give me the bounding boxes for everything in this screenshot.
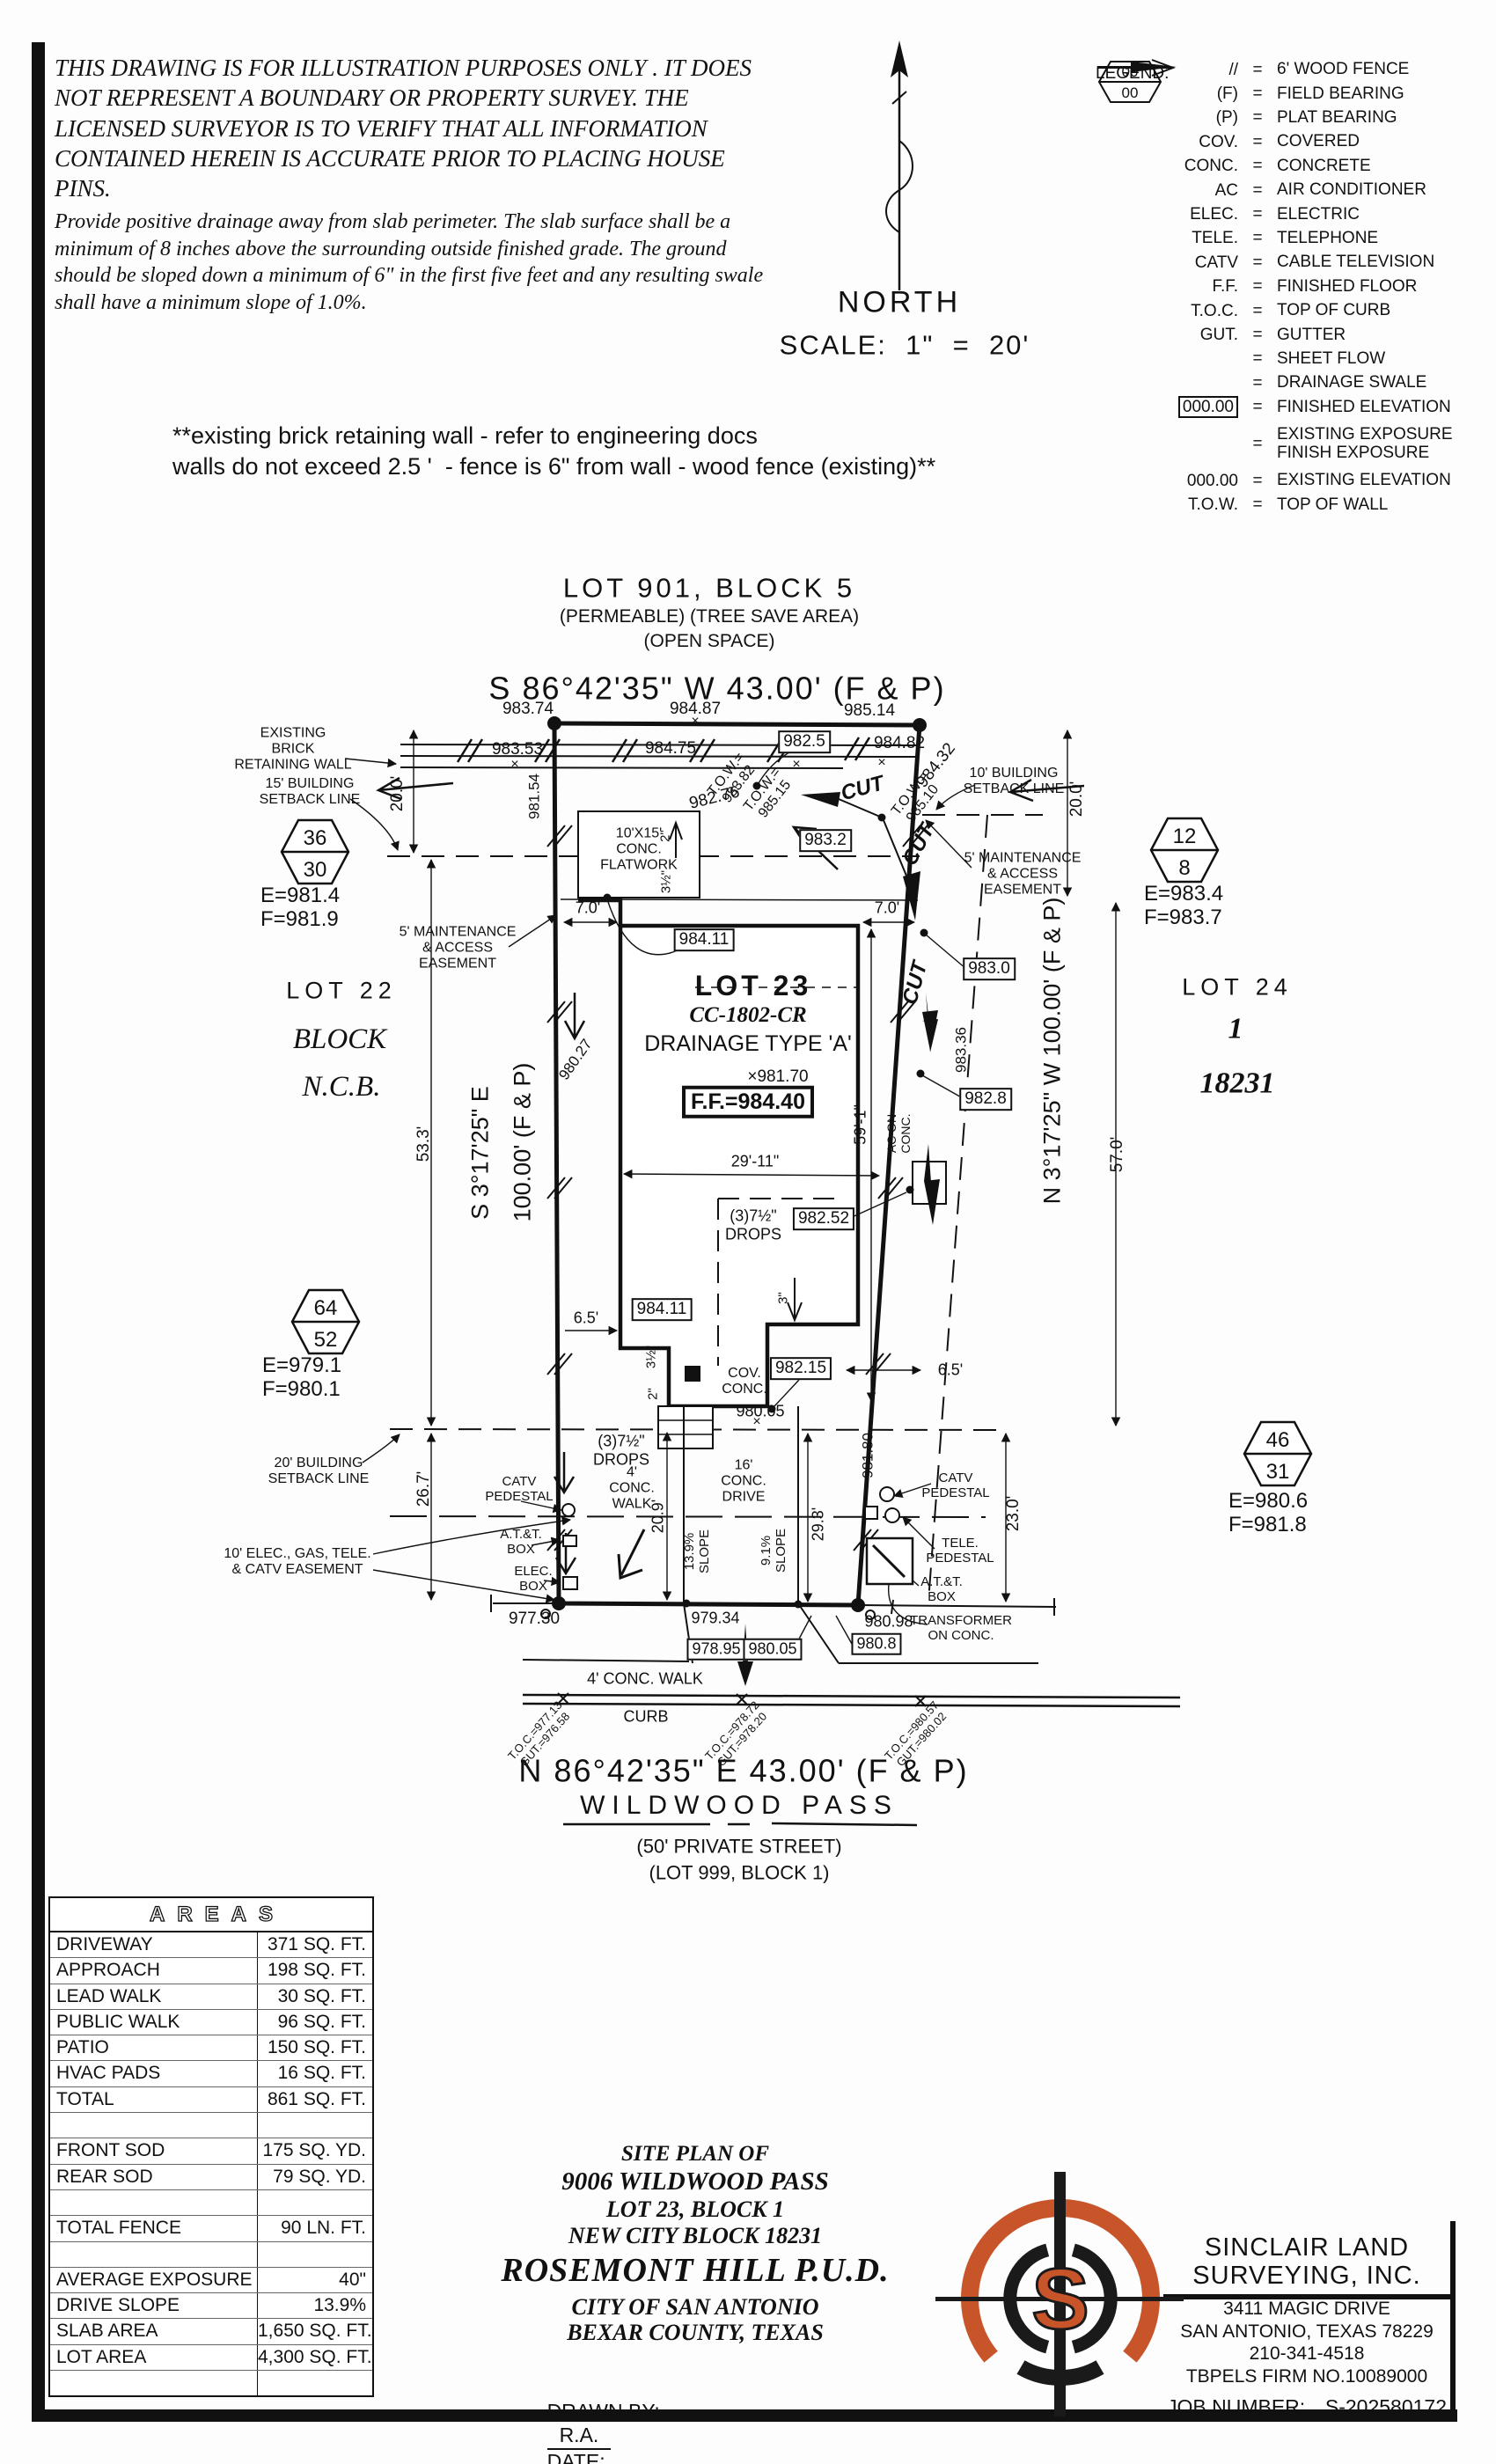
legend-symbol: F.F. — [1147, 277, 1238, 297]
legend-equals: = — [1238, 435, 1277, 454]
site-plan-page: 36 30 12 8 64 52 46 31 S THIS DRAWING IS… — [0, 0, 1496, 2464]
areas-row: HVAC PADS 16 SQ. FT. — [50, 2061, 372, 2086]
areas-row: SLAB AREA 1,650 SQ. FT. — [50, 2319, 372, 2344]
surveyor-name-1: SINCLAIR LAND — [1163, 2233, 1450, 2262]
permeable-note: (PERMEABLE) (TREE SAVE AREA) — [560, 606, 859, 627]
bearing-west-2: 100.00' (F & P) — [510, 1063, 537, 1222]
street-name: WILDWOOD PASS — [580, 1791, 898, 1821]
areas-row-value — [258, 2190, 372, 2215]
surveyor-address-2: SAN ANTONIO, TEXAS 78229 — [1163, 2321, 1450, 2343]
elev-983-74: 983.74 — [502, 700, 554, 719]
dim-3in: 3" — [775, 1292, 790, 1304]
elev-984-75: 984.75 — [645, 739, 696, 759]
areas-table: AREAS DRIVEWAY 371 SQ. FT. APPROACH 198 … — [48, 1896, 374, 2397]
bearing-west-1: S 3°17'25" E — [467, 1086, 495, 1220]
areas-row: PATIO 150 SQ. FT. — [50, 2035, 372, 2061]
drawn-by-row: DRAWN BY: R.A. DATE: 3/12/2025 — [524, 2376, 662, 2464]
drainage-type-label: DRAINAGE TYPE 'A' — [644, 1031, 852, 1057]
maintenance-easement-east: 5' MAINTENANCE & ACCESS EASEMENT — [964, 851, 1082, 899]
x-mark: × — [691, 714, 699, 730]
spot-elev-981-70: ×981.70 — [747, 1067, 808, 1087]
areas-row: AVERAGE EXPOSURE 40" — [50, 2268, 372, 2293]
title-line-4: NEW CITY BLOCK 18231 — [493, 2223, 898, 2249]
date-label: DATE: — [547, 2450, 605, 2464]
legend-desc: EXISTING EXPOSURE FINISH EXPOSURE — [1277, 426, 1453, 463]
hex-36: 36 — [304, 826, 327, 850]
scale-label: SCALE: 1" = 20' — [780, 329, 1030, 360]
bearing-east: N 3°17'25" W 100.00' (F & P) — [1039, 898, 1067, 1205]
dim-6-5-left: 6.5' — [574, 1309, 598, 1328]
areas-row-value: 16 SQ. FT. — [258, 2061, 372, 2086]
areas-row-value: 30 SQ. FT. — [258, 1984, 372, 2009]
legend-row: (F) = FIELD BEARING — [1147, 82, 1492, 106]
areas-row-label: HVAC PADS — [50, 2061, 258, 2086]
street-sub1: (50' PRIVATE STREET) — [636, 1835, 841, 1857]
elev-980-05-box: 980.05 — [743, 1639, 802, 1661]
svg-text:00: 00 — [1122, 84, 1139, 101]
conc-drive-label: 16' CONC. DRIVE — [721, 1458, 766, 1507]
areas-row-label: TOTAL FENCE — [50, 2216, 258, 2240]
areas-row-value: 371 SQ. FT. — [258, 1932, 372, 1957]
legend-symbol: AC — [1147, 181, 1238, 201]
dim-53-3: 53.3' — [414, 1126, 434, 1162]
hex-12: 12 — [1173, 825, 1197, 848]
legend-equals: = — [1238, 253, 1277, 273]
areas-row-label: TOTAL — [50, 2087, 258, 2112]
legend-equals: = — [1238, 181, 1277, 201]
block-label: BLOCK — [293, 1023, 386, 1057]
elev-980-98: 980.98 — [864, 1613, 913, 1632]
areas-row: APPROACH 198 SQ. FT. — [50, 1958, 372, 1984]
wall-note: **existing brick retaining wall - refer … — [172, 421, 935, 482]
exposure-ef-983: E=983.4 F=983.7 — [1144, 882, 1223, 930]
cov-conc-label: COV. CONC. — [722, 1366, 767, 1397]
lot-23-label: LOT 23 — [695, 970, 811, 1001]
dim-26-7: 26.7' — [414, 1471, 434, 1507]
job-number-label: JOB NUMBER: — [1167, 2395, 1305, 2419]
legend-equals: = — [1238, 277, 1277, 297]
areas-row-value: 96 SQ. FT. — [258, 2010, 372, 2035]
legend-equals: = — [1238, 495, 1277, 515]
finished-floor-value: F.F.=984.40 — [682, 1086, 814, 1118]
legend-desc: TELEPHONE — [1277, 230, 1378, 248]
elev-984-11-box-a: 984.11 — [674, 928, 735, 951]
title-line-6: CITY OF SAN ANTONIO — [493, 2294, 898, 2321]
dim-29-3: 29.3' — [810, 1507, 828, 1541]
elev-982-52-box: 982.52 — [793, 1207, 854, 1230]
areas-row-value: 1,650 SQ. FT. — [258, 2319, 378, 2343]
legend-equals: = — [1238, 108, 1277, 128]
legend-desc: TOP OF CURB — [1277, 302, 1390, 320]
dim-29-11: 29'-11" — [731, 1153, 780, 1171]
elev-981-54: 981.54 — [525, 774, 542, 819]
lot-22-label: LOT 22 — [286, 978, 397, 1005]
curb-label: CURB — [623, 1708, 668, 1727]
areas-row-label: FRONT SOD — [50, 2138, 258, 2163]
title-line-7: BEXAR COUNTY, TEXAS — [493, 2320, 898, 2346]
legend: LEGEND: // = 6' WOOD FENCE (F) = FIELD B… — [1096, 58, 1492, 517]
areas-row-label — [50, 2242, 258, 2267]
legend-desc: FINISHED ELEVATION — [1277, 399, 1451, 417]
legend-row: T.O.W. = TOP OF WALL — [1147, 493, 1492, 517]
elev-982-15-box: 982.15 — [770, 1357, 832, 1380]
dim-20-0-left: 20.0' — [388, 776, 407, 812]
legend-desc: FINISHED FLOOR — [1277, 278, 1417, 297]
areas-row-value: 90 LN. FT. — [258, 2216, 372, 2240]
legend-row: COV. = COVERED — [1147, 130, 1492, 154]
lot-24-label: LOT 24 — [1182, 974, 1293, 1001]
hex-46: 46 — [1266, 1428, 1290, 1452]
areas-row-value: 4,300 SQ. FT. — [258, 2345, 378, 2370]
legend-equals: = — [1238, 398, 1277, 417]
finished-elevation-symbol: 000.00 — [1178, 396, 1238, 418]
drive-slope-139: 13.9% SLOPE — [682, 1529, 712, 1573]
disclaimer: THIS DRAWING IS FOR ILLUSTRATION PURPOSE… — [55, 53, 767, 321]
exposure-ef-979: E=979.1 F=980.1 — [262, 1353, 341, 1402]
areas-row: REAR SOD 79 SQ. YD. — [50, 2165, 372, 2190]
legend-equals: = — [1238, 472, 1277, 491]
existing-wall-label: EXISTING BRICK RETAINING WALL — [234, 726, 351, 774]
areas-row-label — [50, 2113, 258, 2138]
legend-desc: PLAT BEARING — [1277, 109, 1397, 128]
surveyor-name-2: SURVEYING, INC. — [1163, 2262, 1450, 2290]
legend-desc: SHEET FLOW — [1277, 350, 1385, 369]
legend-row: // = 6' WOOD FENCE — [1147, 58, 1492, 82]
hex-52: 52 — [314, 1328, 338, 1352]
ncb-label: N.C.B. — [303, 1071, 381, 1104]
dim-59-1: 59'-1" — [852, 1104, 870, 1145]
disclaimer-text-1: THIS DRAWING IS FOR ILLUSTRATION PURPOSE… — [55, 53, 767, 203]
areas-row-label: LEAD WALK — [50, 1984, 258, 2009]
dim-20-9: 20.9' — [649, 1500, 668, 1533]
legend-equals: = — [1238, 205, 1277, 224]
areas-row-label: LOT AREA — [50, 2345, 258, 2370]
legend-symbol: T.O.W. — [1147, 495, 1238, 515]
legend-equals: = — [1238, 302, 1277, 321]
maintenance-easement-west: 5' MAINTENANCE & ACCESS EASEMENT — [400, 925, 517, 973]
elev-980-8-box: 980.8 — [851, 1633, 901, 1655]
hex-30: 30 — [304, 858, 327, 882]
legend-symbol: TELE. — [1147, 229, 1238, 248]
legend-desc: ELECTRIC — [1277, 206, 1360, 224]
areas-row: LOT AREA 4,300 SQ. FT. — [50, 2345, 372, 2371]
areas-row-label: AVERAGE EXPOSURE — [50, 2268, 258, 2292]
areas-row: PUBLIC WALK 96 SQ. FT. — [50, 2010, 372, 2035]
title-block: SITE PLAN OF 9006 WILDWOOD PASS LOT 23, … — [493, 2142, 898, 2346]
areas-row-label — [50, 2190, 258, 2215]
legend-row: AC = AIR CONDITIONER — [1147, 179, 1492, 202]
att-box-west: A.T.&T. BOX — [500, 1527, 542, 1557]
north-arrow-icon — [886, 40, 913, 290]
legend-equals: = — [1238, 157, 1277, 176]
title-line-3: LOT 23, BLOCK 1 — [493, 2196, 898, 2223]
catv-pedestal-west: CATV PEDESTAL — [485, 1474, 553, 1504]
legend-row-exposure: 00 00 = EXISTING EXPOSURE FINISH EXPOSUR… — [1147, 420, 1492, 469]
areas-row-label: DRIVEWAY — [50, 1932, 258, 1957]
surveyor-block: SINCLAIR LAND SURVEYING, INC. 3411 MAGIC… — [1163, 2233, 1450, 2419]
legend-desc: 6' WOOD FENCE — [1277, 61, 1409, 79]
legend-row: GUT. = GUTTER — [1147, 323, 1492, 347]
areas-row — [50, 2242, 372, 2268]
x-mark: × — [877, 755, 885, 771]
legend-equals: = — [1238, 349, 1277, 369]
hex-8: 8 — [1178, 856, 1190, 880]
legend-symbol: CATV — [1147, 253, 1238, 273]
areas-row: TOTAL 861 SQ. FT. — [50, 2087, 372, 2113]
legend-row-finished-elevation: 000.00 = FINISHED ELEVATION — [1147, 395, 1492, 419]
elev-977-30: 977.30 — [509, 1610, 560, 1629]
open-space-note: (OPEN SPACE) — [644, 631, 775, 652]
areas-row-value: 79 SQ. YD. — [258, 2165, 372, 2189]
areas-row: DRIVEWAY 371 SQ. FT. — [50, 1932, 372, 1958]
dim-6-5-right: 6.5' — [938, 1361, 963, 1380]
dim-20-0-right: 20.0' — [1067, 781, 1087, 818]
dim-2in-b: 2" — [645, 1388, 660, 1400]
areas-row-label: REAR SOD — [50, 2165, 258, 2189]
hex-31: 31 — [1266, 1460, 1290, 1484]
elev-984-82: 984.82 — [874, 734, 925, 753]
legend-equals: = — [1238, 374, 1277, 393]
legend-desc: DRAINAGE SWALE — [1277, 374, 1426, 392]
drive-slope-91: 9.1% SLOPE — [759, 1529, 788, 1573]
utility-easement-label: 10' ELEC., GAS, TELE. & CATV EASEMENT — [224, 1546, 370, 1578]
legend-row: 000.00 = EXISTING ELEVATION — [1147, 469, 1492, 493]
areas-row-value: 861 SQ. FT. — [258, 2087, 372, 2112]
legend-row: F.F. = FINISHED FLOOR — [1147, 275, 1492, 299]
elev-983-2-box: 983.2 — [799, 829, 852, 852]
legend-row: (P) = PLAT BEARING — [1147, 106, 1492, 130]
legend-equals: = — [1238, 84, 1277, 104]
legend-row: CATV = CABLE TELEVISION — [1147, 251, 1492, 275]
areas-row: DRIVE SLOPE 13.9% — [50, 2293, 372, 2319]
conc-walk-label: 4' CONC. WALK — [609, 1465, 655, 1514]
drops-label-a: (3)7½" DROPS — [725, 1206, 781, 1243]
svg-text:00: 00 — [1122, 63, 1139, 80]
conc-walk-4ft-label: 4' CONC. WALK — [587, 1670, 703, 1689]
setback-15-label: 15' BUILDING SETBACK LINE — [260, 776, 361, 808]
areas-row — [50, 2371, 372, 2395]
job-number-value: S-202580172 — [1325, 2395, 1447, 2419]
drops-label-b: (3)7½" DROPS — [593, 1432, 649, 1468]
legend-desc: FIELD BEARING — [1277, 85, 1404, 104]
areas-row — [50, 2190, 372, 2216]
north-label: NORTH — [838, 286, 961, 320]
legend-symbol: 000.00 — [1147, 472, 1238, 491]
legend-desc: COVERED — [1277, 133, 1360, 151]
legend-row-drainage-swale: = DRAINAGE SWALE — [1147, 371, 1492, 395]
areas-row: TOTAL FENCE 90 LN. FT. — [50, 2216, 372, 2241]
areas-row-label: PATIO — [50, 2035, 258, 2060]
x-mark: × — [792, 757, 800, 773]
exposure-ef-980: E=980.6 F=981.8 — [1228, 1489, 1308, 1537]
setback-20-label: 20' BUILDING SETBACK LINE — [268, 1456, 370, 1487]
legend-desc: EXISTING ELEVATION — [1277, 472, 1451, 490]
exposure-ef-981: E=981.4 F=981.9 — [260, 884, 340, 932]
legend-row: TELE. = TELEPHONE — [1147, 227, 1492, 251]
elev-982-5-box: 982.5 — [778, 730, 831, 753]
att-box-east: A.T.&T. BOX — [920, 1574, 963, 1604]
cc-1802-label: CC-1802-CR — [689, 1003, 806, 1029]
dim-23-0: 23.0' — [1004, 1496, 1023, 1532]
legend-row: CONC. = CONCRETE — [1147, 155, 1492, 179]
areas-row-value: 198 SQ. FT. — [258, 1958, 372, 1983]
setback-10-label: 10' BUILDING SETBACK LINE — [964, 766, 1065, 797]
areas-row: FRONT SOD 175 SQ. YD. — [50, 2138, 372, 2164]
lot-901-heading: LOT 901, BLOCK 5 — [563, 572, 855, 603]
elev-979-34: 979.34 — [691, 1610, 739, 1628]
plat-number: 18231 — [1200, 1067, 1275, 1102]
dim-7-0-left: 7.0' — [576, 899, 600, 918]
plat-volume: 1 — [1228, 1013, 1243, 1047]
elev-978-95-box: 978.95 — [686, 1639, 745, 1661]
surveyor-phone: 210-341-4518 — [1163, 2343, 1450, 2365]
drawn-by-label: DRAWN BY: — [547, 2400, 660, 2423]
legend-symbol: (P) — [1147, 108, 1238, 128]
areas-row-label: SLAB AREA — [50, 2319, 258, 2343]
areas-row-value: 40" — [258, 2268, 372, 2292]
legend-equals: = — [1238, 133, 1277, 152]
legend-equals: = — [1238, 229, 1277, 248]
dim-7-0-right: 7.0' — [875, 899, 899, 918]
street-sub2: (LOT 999, BLOCK 1) — [649, 1861, 829, 1883]
elev-984-11-box-b: 984.11 — [632, 1298, 693, 1321]
elec-box-west: ELEC. BOX — [514, 1564, 552, 1594]
areas-row-label — [50, 2371, 258, 2395]
legend-row: T.O.C. = TOP OF CURB — [1147, 299, 1492, 323]
areas-row-value: 150 SQ. FT. — [258, 2035, 372, 2060]
title-line-2: 9006 WILDWOOD PASS — [493, 2167, 898, 2196]
legend-symbol: ELEC. — [1147, 205, 1238, 224]
areas-row-value: 13.9% — [258, 2293, 372, 2318]
legend-symbol: COV. — [1147, 133, 1238, 152]
dim-3half-a: 3½" — [658, 870, 673, 893]
legend-symbol: CONC. — [1147, 157, 1238, 176]
surveyor-address-1: 3411 MAGIC DRIVE — [1163, 2298, 1450, 2321]
legend-desc: AIR CONDITIONER — [1277, 181, 1426, 200]
areas-title: AREAS — [50, 1898, 372, 1932]
x-mark: × — [510, 757, 518, 773]
title-line-1: SITE PLAN OF — [493, 2142, 898, 2167]
catv-pedestal-east: CATV PEDESTAL — [921, 1470, 989, 1500]
dim-57-0: 57.0' — [1108, 1137, 1127, 1173]
legend-desc: TOP OF WALL — [1277, 496, 1388, 515]
areas-row-label: DRIVE SLOPE — [50, 2293, 258, 2318]
areas-row-value: 175 SQ. YD. — [258, 2138, 372, 2163]
legend-desc: CONCRETE — [1277, 158, 1371, 176]
areas-row — [50, 2113, 372, 2138]
areas-row-label: PUBLIC WALK — [50, 2010, 258, 2035]
areas-row-label: APPROACH — [50, 1958, 258, 1983]
areas-row: LEAD WALK 30 SQ. FT. — [50, 1984, 372, 2010]
legend-equals: = — [1238, 61, 1277, 80]
legend-row-sheet-flow: = SHEET FLOW — [1147, 348, 1492, 371]
areas-row-value — [258, 2113, 372, 2138]
elev-985-14: 985.14 — [844, 701, 895, 721]
elev-983-0-box: 983.0 — [963, 957, 1016, 980]
transformer-label: TRANSFORMER ON CONC. — [910, 1613, 1012, 1643]
dim-2in-a: 2" — [657, 830, 672, 842]
x-mark: × — [752, 1414, 760, 1430]
elev-981-80: 981.80 — [859, 1433, 876, 1478]
disclaimer-text-2: Provide positive drainage away from slab… — [55, 209, 767, 316]
legend-equals: = — [1238, 326, 1277, 345]
dim-3half-b: 3½" — [643, 1346, 658, 1368]
surveyor-logo: S — [935, 2172, 1184, 2416]
areas-row-value — [258, 2242, 372, 2267]
legend-symbol: T.O.C. — [1147, 302, 1238, 321]
ac-on-conc-label: AC ON CONC. — [885, 1113, 913, 1153]
logo-letter: S — [1031, 2250, 1089, 2347]
hex-64: 64 — [314, 1296, 338, 1320]
surveyor-firm: TBPELS FIRM NO.10089000 — [1163, 2365, 1450, 2388]
legend-desc: CABLE TELEVISION — [1277, 253, 1434, 272]
drawn-by-value: R.A. — [547, 2424, 612, 2450]
legend-desc: GUTTER — [1277, 326, 1346, 345]
title-line-5: ROSEMONT HILL P.U.D. — [493, 2252, 898, 2291]
elev-983-36: 983.36 — [952, 1027, 969, 1073]
legend-row: ELEC. = ELECTRIC — [1147, 202, 1492, 226]
areas-row-value — [258, 2371, 372, 2395]
legend-symbol: GUT. — [1147, 326, 1238, 345]
tele-pedestal-east: TELE. PEDESTAL — [926, 1536, 994, 1566]
elev-982-8-box: 982.8 — [959, 1088, 1012, 1111]
